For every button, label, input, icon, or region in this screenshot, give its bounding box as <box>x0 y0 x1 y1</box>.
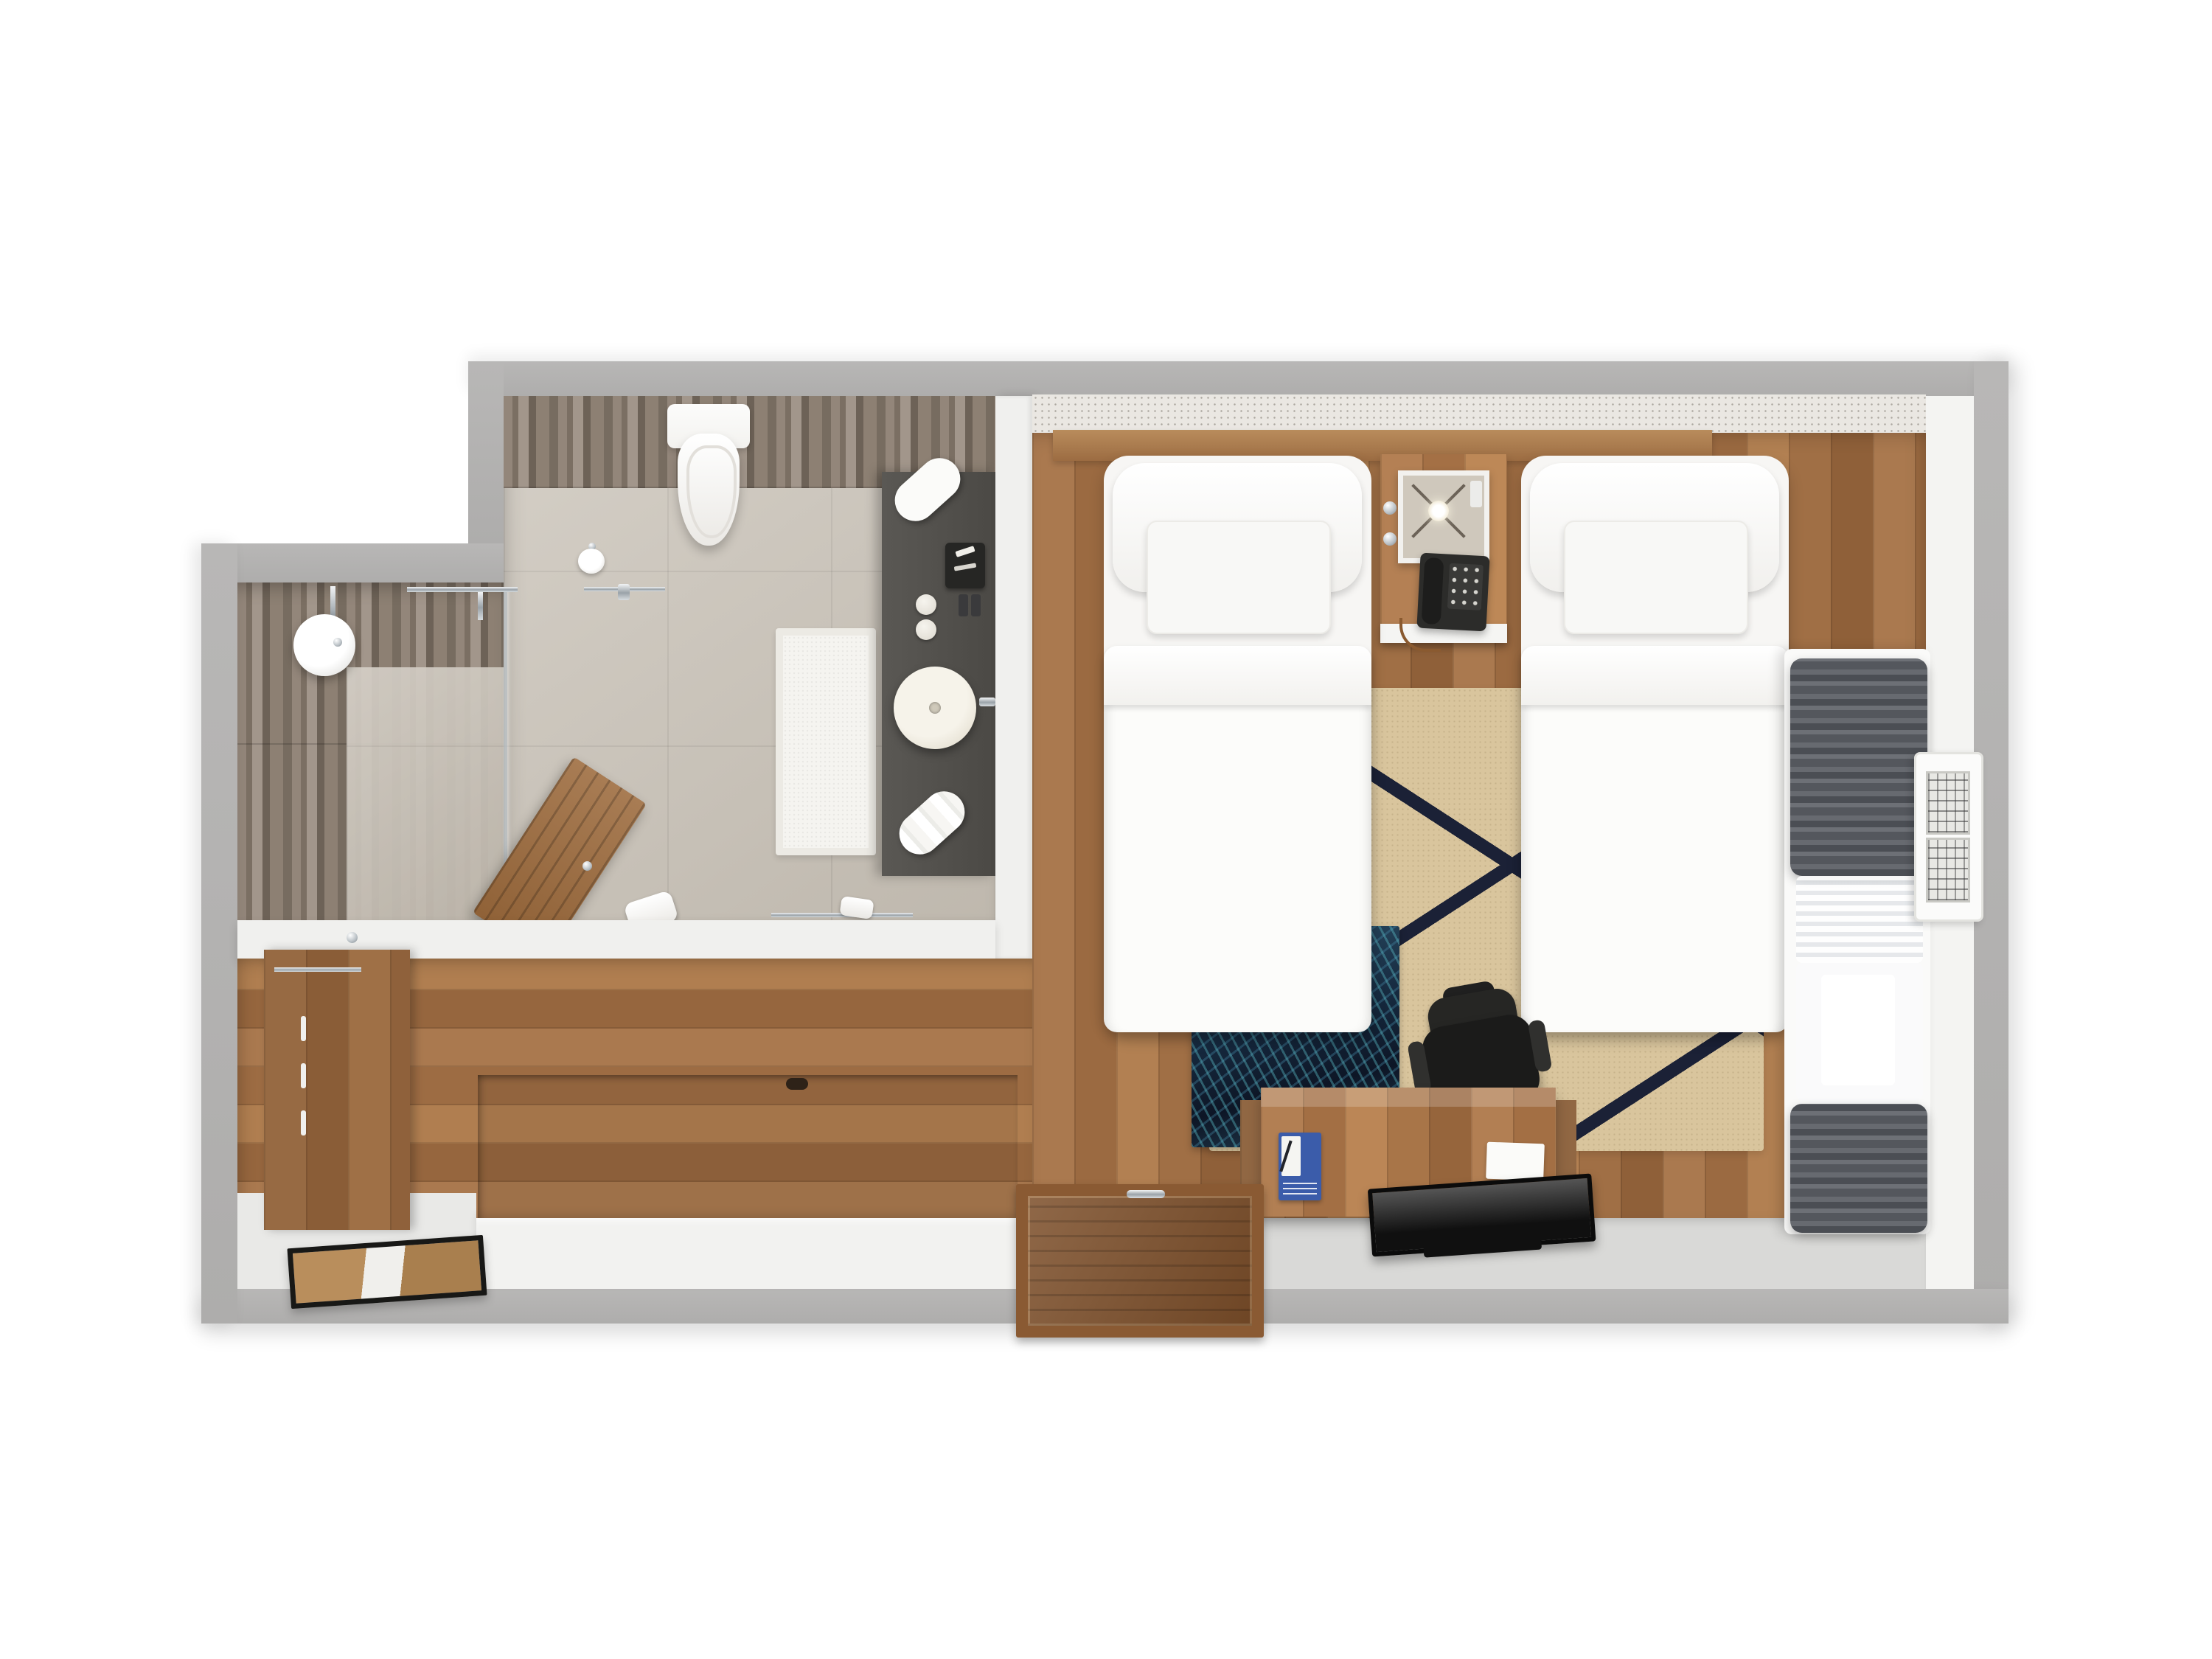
floor-plan-canvas <box>0 0 2212 1659</box>
menu-card <box>1279 1133 1321 1200</box>
lamp-bulb <box>1428 501 1449 521</box>
rain-shower-head <box>293 614 355 676</box>
hanging-rail <box>274 967 361 972</box>
handheld-shower <box>478 592 483 620</box>
sink-faucet <box>979 698 995 706</box>
headboard-knob-1 <box>1383 501 1397 515</box>
duvet-fold <box>1104 646 1371 705</box>
television <box>1368 1174 1596 1265</box>
headboard-knob-2 <box>1383 532 1397 546</box>
bath-mat <box>776 628 876 855</box>
toilet-paper-roll <box>578 549 605 574</box>
soap-dish-2 <box>916 619 936 640</box>
curtain-top <box>1790 658 1927 876</box>
desk-top-edge <box>1261 1088 1556 1107</box>
toilet <box>667 404 750 553</box>
duvet-fold <box>1521 646 1789 705</box>
ac-grille-lower <box>1926 838 1970 902</box>
drawer-handle-2 <box>301 1063 306 1088</box>
pillow-small <box>1147 521 1331 634</box>
toiletry-bottle-1 <box>959 594 968 616</box>
telephone-keypad <box>1447 563 1484 611</box>
drawer-handle-1 <box>301 1016 306 1041</box>
twin-bed-left <box>1104 456 1371 1032</box>
sheer-curtain <box>1796 876 1923 963</box>
shower-head-center <box>333 638 342 647</box>
sink-drain <box>929 702 941 714</box>
twin-bed-right <box>1521 456 1789 1032</box>
bedroom-top-wall-face <box>1032 394 1926 433</box>
wall-bathroom-left <box>468 361 504 543</box>
wall-left <box>201 543 237 1324</box>
curtain-bottom <box>1790 1104 1927 1233</box>
partition-bath-bedroom <box>995 396 1032 959</box>
ac-grille <box>1926 771 1970 835</box>
raised-floor-platform <box>478 1075 1018 1220</box>
toiletry-bottle-2 <box>971 594 981 616</box>
shower-mixer-bar <box>407 587 518 592</box>
wall-top <box>468 361 2008 396</box>
notepad <box>1486 1142 1545 1181</box>
bathroom-door-handle <box>582 861 592 871</box>
pillow-small <box>1564 521 1748 634</box>
drawer-handle-3 <box>301 1110 306 1135</box>
entry-door <box>1016 1184 1264 1338</box>
shower-floor <box>347 667 504 922</box>
vestibule-wall <box>476 1218 1018 1289</box>
wardrobe-minibar-cabinet <box>264 950 410 1230</box>
window-glint-bright <box>1821 975 1895 1085</box>
entry-door-handle <box>1127 1190 1165 1198</box>
platform-slot <box>786 1078 808 1090</box>
telephone-handset <box>1422 557 1444 625</box>
lamp-dock <box>1470 481 1482 507</box>
coat-hook <box>347 932 358 943</box>
shower-faucet-valve <box>618 584 630 600</box>
soap-dish-1 <box>916 594 936 615</box>
menu-card-text-lines <box>1283 1181 1317 1194</box>
wall-shower-wing-top <box>201 543 504 582</box>
